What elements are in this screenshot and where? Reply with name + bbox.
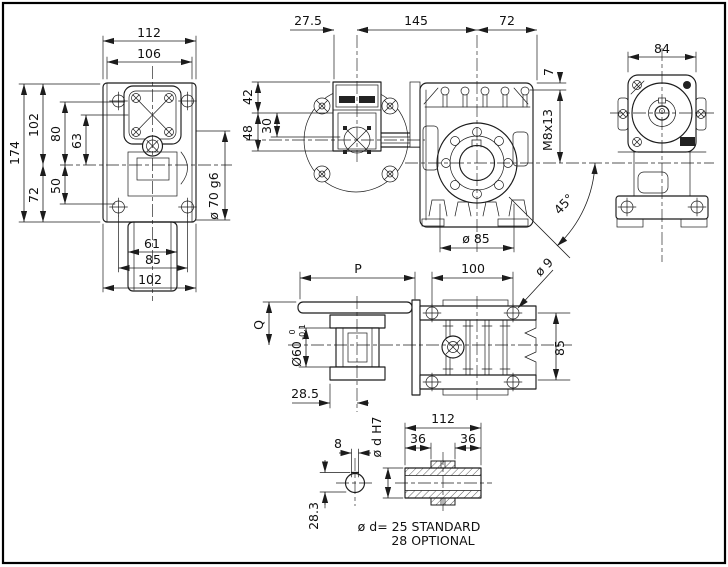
shaft-note-standard: ø d= 25 STANDARD xyxy=(358,519,481,534)
dim-front-72: 72 xyxy=(26,187,41,203)
dim-front-80: 80 xyxy=(48,126,63,142)
dim-front-85: 85 xyxy=(145,252,161,267)
dim-side-7: 7 xyxy=(541,68,556,76)
dim-front-hub-dia: ø 70 g6 xyxy=(206,172,221,219)
dim-output-60: Ø60 xyxy=(289,341,304,367)
dim-front-50: 50 xyxy=(48,178,63,194)
dim-side-30: 30 xyxy=(259,118,274,134)
dim-side-72: 72 xyxy=(499,13,515,28)
dim-end-84: 84 xyxy=(654,41,670,56)
dim-side-48: 48 xyxy=(240,125,255,141)
dim-shaft-28-3: 28.3 xyxy=(306,502,321,530)
dim-output-tol-lo: -0.1 xyxy=(298,324,307,340)
dim-output-P: P xyxy=(354,261,362,276)
dim-shaft-112: 112 xyxy=(431,411,455,426)
dim-side-27-5: 27.5 xyxy=(294,13,322,28)
drawing-page: 112 106 174 102 72 80 63 50 61 85 102 xyxy=(0,0,728,567)
dim-front-102: 102 xyxy=(26,113,41,137)
dim-front-102b: 102 xyxy=(138,272,162,287)
dim-shaft-36b: 36 xyxy=(460,431,476,446)
dim-side-42: 42 xyxy=(240,89,255,105)
dim-front-63: 63 xyxy=(69,133,84,149)
shaft-note-optional: 28 OPTIONAL xyxy=(391,533,474,548)
dim-front-174: 174 xyxy=(7,141,22,165)
dim-output-100: 100 xyxy=(461,261,485,276)
dim-shaft-bore: ø d H7 xyxy=(369,417,384,458)
dim-front-61: 61 xyxy=(144,236,160,251)
dim-front-106: 106 xyxy=(137,46,161,61)
dim-output-Q: Q xyxy=(251,320,266,330)
gearbox-technical-drawing: 112 106 174 102 72 80 63 50 61 85 102 xyxy=(0,0,728,567)
dim-shaft-36a: 36 xyxy=(410,431,426,446)
dim-output-tol-hi: 0 xyxy=(288,329,297,334)
dim-front-112: 112 xyxy=(137,25,161,40)
dim-shaft-key-8: 8 xyxy=(334,436,342,451)
dim-output-85: 85 xyxy=(552,340,567,356)
dim-side-flange-dia: ø 85 xyxy=(462,231,490,246)
dim-side-145: 145 xyxy=(404,13,428,28)
dim-output-28-5: 28.5 xyxy=(291,386,319,401)
dim-side-thread: M8x13 xyxy=(540,109,555,151)
